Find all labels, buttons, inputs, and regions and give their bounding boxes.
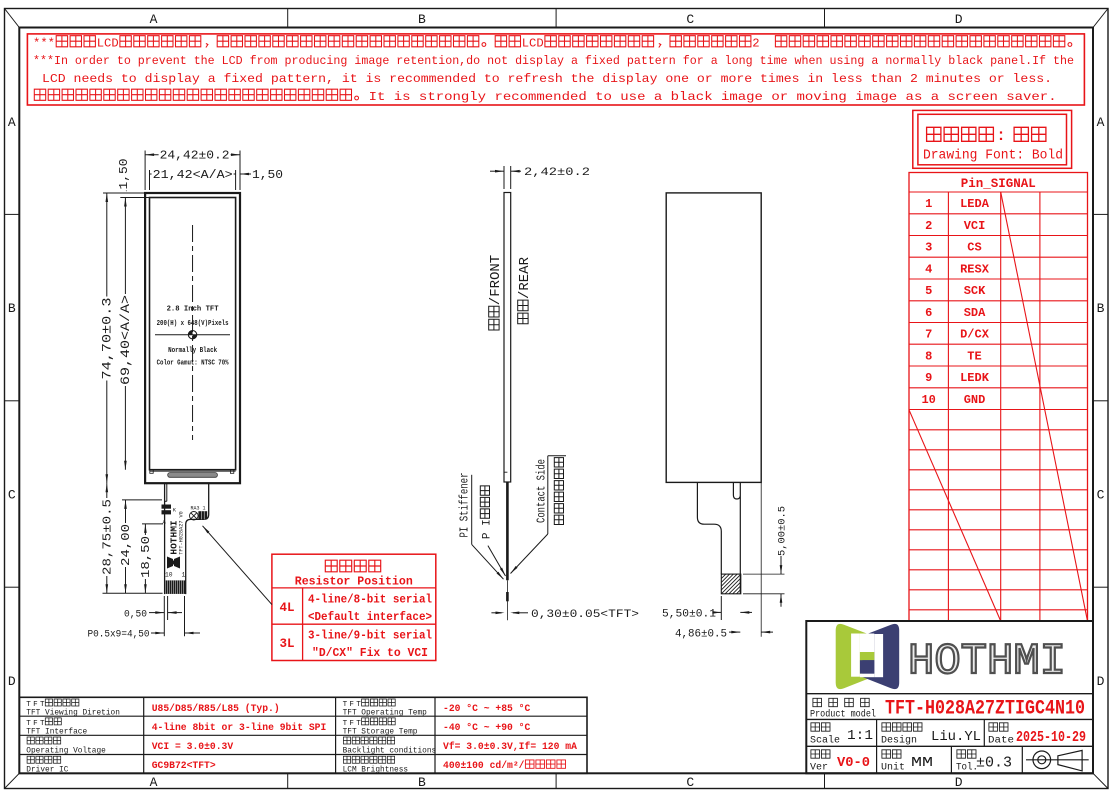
svg-text:Design: Design bbox=[881, 735, 917, 746]
svg-text:5,00±0.5: 5,00±0.5 bbox=[777, 506, 789, 556]
svg-text:TFT Storage Temp: TFT Storage Temp bbox=[343, 728, 418, 736]
svg-text:2,42±0.2: 2,42±0.2 bbox=[524, 167, 590, 179]
svg-text:Driver IC: Driver IC bbox=[26, 767, 68, 775]
svg-text:24,42±0.2: 24,42±0.2 bbox=[160, 150, 230, 163]
svg-text:A: A bbox=[8, 115, 16, 130]
svg-text:Tol.: Tol. bbox=[956, 762, 978, 773]
svg-text:1: 1 bbox=[182, 572, 186, 579]
svg-text:VCI = 3.0±0.3V: VCI = 3.0±0.3V bbox=[152, 741, 234, 752]
svg-text:RESX: RESX bbox=[960, 262, 990, 276]
svg-text:LEDA: LEDA bbox=[960, 197, 990, 211]
svg-text:24,00: 24,00 bbox=[119, 524, 133, 566]
svg-text:HOTHMI: HOTHMI bbox=[908, 637, 1066, 687]
svg-text:2.8 Inch TFT: 2.8 Inch TFT bbox=[167, 306, 220, 314]
svg-text:69,40<A/A>: 69,40<A/A> bbox=[119, 295, 133, 385]
svg-text:VCI: VCI bbox=[964, 219, 986, 233]
svg-text:1:1: 1:1 bbox=[847, 728, 873, 744]
svg-text:2025-10-29: 2025-10-29 bbox=[1016, 730, 1086, 746]
svg-text:LCM Brightness: LCM Brightness bbox=[343, 767, 409, 775]
svg-text:TFT-H028A27 V0: TFT-H028A27 V0 bbox=[179, 511, 185, 555]
svg-text:-40 °C ~ +90 °C: -40 °C ~ +90 °C bbox=[443, 722, 530, 733]
svg-text:P0.5x9=4,50: P0.5x9=4,50 bbox=[88, 629, 150, 641]
svg-text:Vf= 3.0±0.3V,If= 120 mA: Vf= 3.0±0.3V,If= 120 mA bbox=[443, 741, 577, 752]
svg-text:Product model: Product model bbox=[810, 709, 876, 720]
svg-text:A: A bbox=[150, 12, 158, 27]
svg-text:***In order to prevent the LCD: ***In order to prevent the LCD from prod… bbox=[33, 54, 1074, 68]
svg-text:***: *** bbox=[33, 37, 55, 51]
svg-text:Liu.YL: Liu.YL bbox=[931, 730, 981, 745]
svg-text:Date: Date bbox=[988, 735, 1014, 746]
svg-text:GC9B72<TFT>: GC9B72<TFT> bbox=[152, 760, 216, 771]
svg-text:Ver: Ver bbox=[810, 762, 828, 773]
svg-text:TFT: TFT bbox=[26, 720, 45, 728]
svg-text:MM: MM bbox=[911, 756, 933, 771]
svg-text:GND: GND bbox=[964, 393, 986, 407]
svg-text:4-line 8bit or 3-line 9bit SPI: 4-line 8bit or 3-line 9bit SPI bbox=[152, 722, 327, 733]
svg-text:LCD needs to display a fixed p: LCD needs to display a fixed pattern, it… bbox=[42, 72, 1052, 86]
svg-text:TFT: TFT bbox=[343, 720, 362, 728]
svg-text:Contact Side: Contact Side bbox=[535, 459, 548, 523]
svg-text:10: 10 bbox=[921, 393, 935, 407]
svg-text:3L: 3L bbox=[279, 637, 294, 651]
svg-text:7: 7 bbox=[925, 328, 932, 342]
svg-text:28,75±0.5: 28,75±0.5 bbox=[100, 499, 114, 575]
svg-text:0,50: 0,50 bbox=[124, 609, 147, 620]
svg-text:3-line/9-bit serial: 3-line/9-bit serial bbox=[308, 629, 432, 643]
svg-text:"D/CX" Fix to VCI: "D/CX" Fix to VCI bbox=[312, 646, 428, 660]
svg-text:9: 9 bbox=[925, 371, 932, 385]
svg-text:SCK: SCK bbox=[964, 284, 986, 298]
svg-text:4: 4 bbox=[925, 262, 932, 276]
svg-text:TFT Viewing Diretion: TFT Viewing Diretion bbox=[26, 710, 120, 718]
svg-text:4-line/8-bit serial: 4-line/8-bit serial bbox=[308, 593, 432, 607]
svg-text:400±100 cd/m²/: 400±100 cd/m²/ bbox=[443, 760, 525, 771]
svg-text:3: 3 bbox=[925, 241, 932, 255]
svg-text:Normally Black: Normally Black bbox=[168, 347, 217, 355]
svg-text:B: B bbox=[418, 775, 426, 790]
svg-text:D: D bbox=[8, 674, 16, 689]
svg-text:1: 1 bbox=[925, 197, 932, 211]
svg-text:SDA: SDA bbox=[964, 306, 986, 320]
svg-text:TFT: TFT bbox=[343, 701, 362, 709]
svg-text:-20 °C ~ +85 °C: -20 °C ~ +85 °C bbox=[443, 703, 530, 714]
svg-text:Scale: Scale bbox=[810, 735, 840, 746]
svg-text:A: A bbox=[1097, 115, 1105, 130]
svg-text:U85/D85/R85/L85 (Typ.): U85/D85/R85/L85 (Typ.) bbox=[152, 703, 280, 714]
svg-text:0,30±0.05<TFT>: 0,30±0.05<TFT> bbox=[531, 609, 639, 621]
svg-text:CS: CS bbox=[967, 241, 981, 255]
svg-text:LCD: LCD bbox=[97, 37, 119, 51]
svg-text:V0-0: V0-0 bbox=[837, 755, 870, 771]
svg-text:1,50: 1,50 bbox=[252, 169, 283, 182]
svg-text:D: D bbox=[955, 12, 963, 27]
svg-text:TE: TE bbox=[967, 349, 981, 363]
svg-text:RA3 1: RA3 1 bbox=[191, 506, 206, 512]
svg-text:/FRONT: /FRONT bbox=[488, 255, 504, 305]
svg-text:4L: 4L bbox=[279, 601, 294, 615]
svg-text:D: D bbox=[955, 775, 963, 790]
svg-text:It is strongly recommended to: It is strongly recommended to use a blac… bbox=[369, 90, 1057, 104]
svg-text:4,86±0.5: 4,86±0.5 bbox=[675, 628, 727, 640]
svg-text:Resistor Position: Resistor Position bbox=[295, 574, 413, 588]
svg-text:D/CX: D/CX bbox=[960, 328, 990, 342]
svg-text:LCD: LCD bbox=[522, 37, 544, 51]
svg-text:21,42<A/A>: 21,42<A/A> bbox=[153, 169, 233, 182]
svg-text:B: B bbox=[418, 12, 426, 27]
svg-text:C: C bbox=[8, 488, 16, 503]
svg-text:200(H) x 648(V)Pixels: 200(H) x 648(V)Pixels bbox=[157, 320, 229, 328]
svg-text:Backlight conditions: Backlight conditions bbox=[343, 748, 437, 756]
svg-text:LEDK: LEDK bbox=[960, 371, 990, 385]
svg-text:Unit: Unit bbox=[881, 762, 905, 773]
svg-text:Color Gamut: NTSC 70%: Color Gamut: NTSC 70% bbox=[157, 360, 229, 368]
svg-text:TFT Interface: TFT Interface bbox=[26, 728, 87, 736]
svg-text:Pin_SIGNAL: Pin_SIGNAL bbox=[961, 177, 1036, 191]
svg-text:5: 5 bbox=[925, 284, 932, 298]
svg-text:C: C bbox=[686, 12, 694, 27]
svg-text:C: C bbox=[1097, 488, 1105, 503]
svg-text:D: D bbox=[1097, 674, 1105, 689]
svg-text:PI Stiffener: PI Stiffener bbox=[458, 473, 471, 538]
svg-text:Drawing Font: Bold: Drawing Font: Bold bbox=[923, 149, 1063, 164]
svg-text:2: 2 bbox=[925, 219, 932, 233]
svg-text:<Default interface>: <Default interface> bbox=[308, 610, 432, 624]
svg-text:10: 10 bbox=[165, 572, 173, 579]
svg-text:B: B bbox=[1097, 301, 1105, 316]
svg-text:18,50: 18,50 bbox=[139, 536, 153, 578]
svg-text:TFT Operating Temp: TFT Operating Temp bbox=[343, 710, 428, 718]
svg-text:5,50±0.1: 5,50±0.1 bbox=[662, 609, 716, 621]
svg-text:Operating Voltage: Operating Voltage bbox=[26, 748, 106, 756]
svg-text:/REAR: /REAR bbox=[517, 256, 533, 299]
svg-text:6: 6 bbox=[925, 306, 932, 320]
svg-text:8: 8 bbox=[925, 349, 932, 363]
svg-text:TFT-H028A27ZTIGC4N10: TFT-H028A27ZTIGC4N10 bbox=[885, 698, 1085, 721]
svg-text:B: B bbox=[8, 301, 16, 316]
svg-text:2: 2 bbox=[752, 37, 759, 51]
svg-text:TFT: TFT bbox=[26, 701, 45, 709]
svg-text:±0.3: ±0.3 bbox=[976, 755, 1012, 772]
svg-text:74,70±0.3: 74,70±0.3 bbox=[100, 298, 114, 380]
svg-text:1,50: 1,50 bbox=[118, 158, 131, 189]
svg-text:A: A bbox=[150, 775, 158, 790]
svg-text:C: C bbox=[686, 775, 694, 790]
